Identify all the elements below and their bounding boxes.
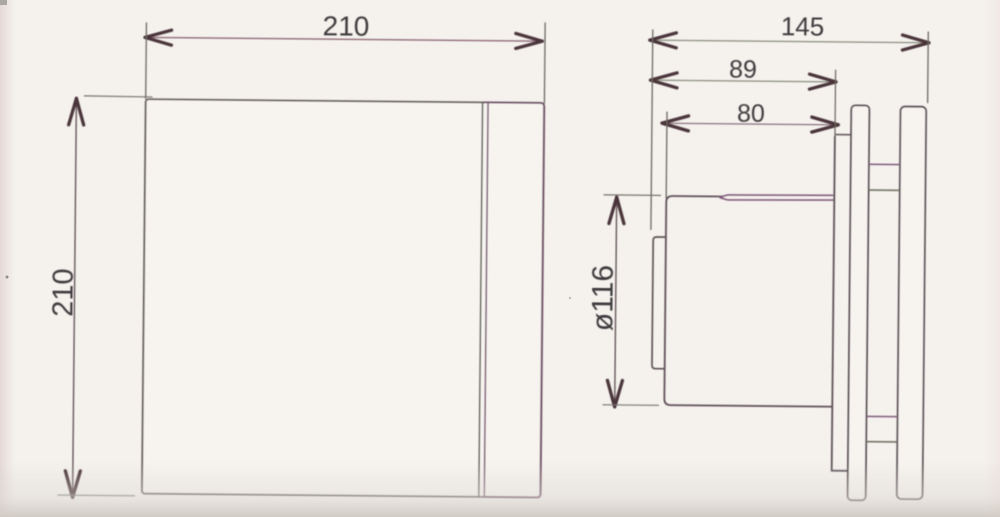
svg-text:210: 210 <box>323 10 370 41</box>
svg-text:210: 210 <box>48 268 80 317</box>
svg-text:ø116: ø116 <box>586 265 620 331</box>
svg-text:89: 89 <box>729 56 757 84</box>
svg-text:145: 145 <box>781 11 825 41</box>
svg-text:80: 80 <box>737 100 765 128</box>
